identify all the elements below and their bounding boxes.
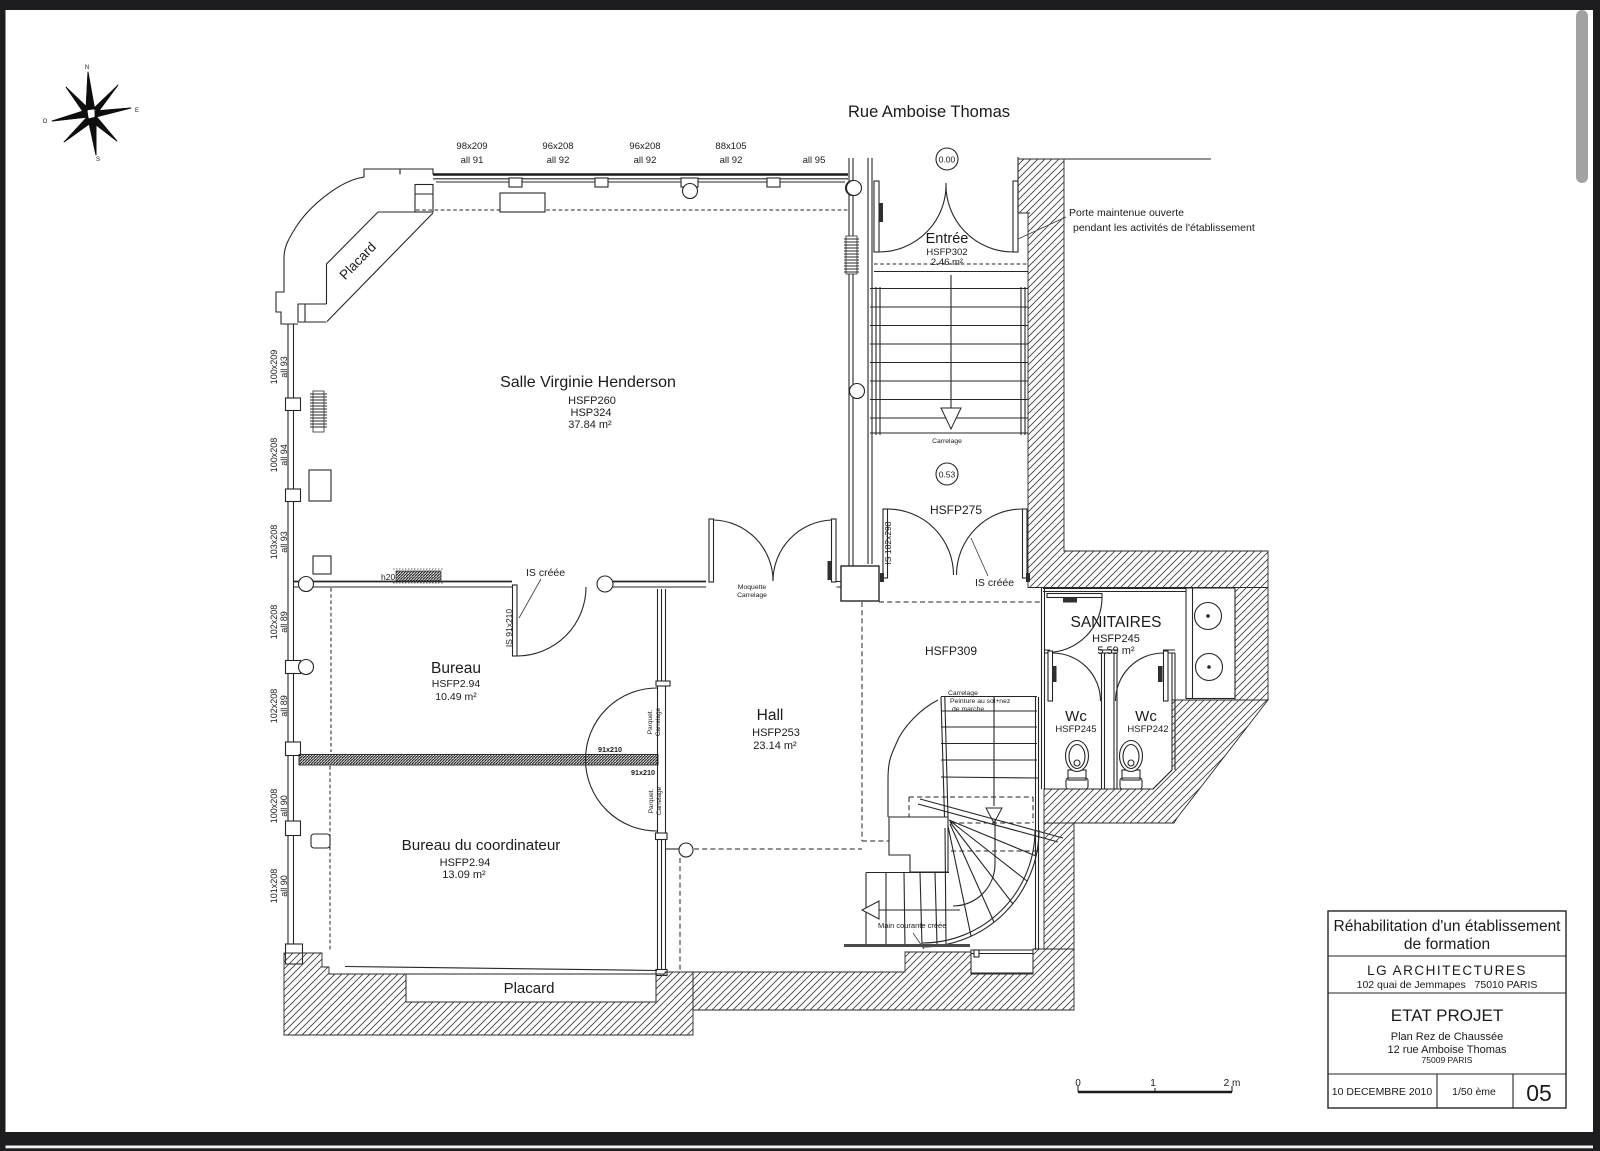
svg-text:HSFP2.94: HSFP2.94: [432, 678, 481, 690]
svg-text:2 m: 2 m: [1224, 1078, 1241, 1089]
svg-text:Main courante créée: Main courante créée: [878, 921, 946, 930]
svg-text:10.49 m²: 10.49 m²: [435, 691, 477, 703]
svg-text:101x208: 101x208: [269, 869, 279, 904]
svg-text:Wc: Wc: [1135, 708, 1157, 725]
svg-text:0: 0: [1075, 1078, 1081, 1089]
svg-text:91x210: 91x210: [598, 745, 622, 754]
svg-text:IS créée: IS créée: [526, 567, 565, 579]
svg-text:Parquet.: Parquet.: [648, 789, 655, 814]
svg-text:88x105: 88x105: [715, 141, 746, 152]
svg-text:HSFP245: HSFP245: [1092, 633, 1140, 645]
svg-text:HSFP245: HSFP245: [1055, 724, 1096, 735]
svg-text:Plan Rez de Chaussée: Plan Rez de Chaussée: [1391, 1031, 1504, 1043]
svg-text:Placard: Placard: [504, 980, 555, 997]
svg-text:O: O: [43, 119, 48, 125]
svg-text:1/50 ème: 1/50 ème: [1452, 1086, 1496, 1098]
svg-text:5.59 m²: 5.59 m²: [1097, 645, 1135, 657]
svg-text:all 93: all 93: [279, 356, 289, 378]
svg-text:N: N: [85, 65, 89, 71]
svg-text:Wc: Wc: [1065, 708, 1087, 725]
svg-text:HSFP253: HSFP253: [752, 727, 800, 739]
svg-text:HSFP309: HSFP309: [925, 644, 977, 658]
svg-text:Moquette: Moquette: [738, 584, 767, 591]
svg-text:S: S: [96, 157, 100, 163]
svg-text:98x209: 98x209: [456, 141, 487, 152]
svg-text:1: 1: [1150, 1078, 1156, 1089]
svg-text:05: 05: [1526, 1080, 1552, 1106]
svg-text:all 93: all 93: [279, 531, 289, 553]
svg-text:h20: h20: [381, 572, 395, 582]
svg-text:SANITAIRES: SANITAIRES: [1070, 614, 1161, 631]
svg-text:100x208: 100x208: [269, 789, 279, 824]
svg-text:0.00: 0.00: [939, 155, 956, 165]
svg-text:96x208: 96x208: [629, 141, 660, 152]
svg-text:Entrée: Entrée: [926, 231, 969, 247]
svg-text:Carrelage: Carrelage: [655, 707, 662, 736]
svg-text:all 92: all 92: [547, 155, 570, 166]
svg-text:HSFP275: HSFP275: [930, 503, 982, 517]
svg-text:Hall: Hall: [757, 707, 784, 724]
svg-text:102x208: 102x208: [269, 689, 279, 724]
svg-text:E: E: [135, 108, 139, 114]
svg-text:Carrelage: Carrelage: [948, 690, 978, 697]
svg-text:23.14 m²: 23.14 m²: [753, 740, 797, 752]
svg-text:103x208: 103x208: [269, 525, 279, 560]
svg-text:IS 182x298: IS 182x298: [883, 521, 893, 564]
svg-text:HSFP242: HSFP242: [1127, 724, 1168, 735]
svg-text:13.09 m²: 13.09 m²: [442, 869, 486, 881]
svg-text:de formation: de formation: [1404, 936, 1490, 953]
svg-text:pendant les activités de l'éta: pendant les activités de l'établissement: [1073, 222, 1255, 234]
svg-text:HSFP2.94: HSFP2.94: [440, 857, 491, 869]
svg-text:de marche: de marche: [952, 706, 984, 713]
svg-text:all 91: all 91: [461, 155, 484, 166]
svg-text:HSFP260: HSFP260: [568, 395, 616, 407]
svg-text:Rue Amboise Thomas: Rue Amboise Thomas: [848, 103, 1010, 121]
svg-text:Parquet.: Parquet.: [647, 710, 654, 735]
svg-text:IS 91x210: IS 91x210: [504, 609, 514, 648]
svg-text:37.84 m²: 37.84 m²: [568, 419, 612, 431]
svg-text:Porte maintenue ouverte: Porte maintenue ouverte: [1069, 207, 1184, 219]
svg-text:all 90: all 90: [279, 875, 289, 897]
svg-text:91x210: 91x210: [631, 768, 655, 777]
svg-text:2.46 m²: 2.46 m²: [931, 257, 963, 268]
svg-text:LG ARCHITECTURES: LG ARCHITECTURES: [1367, 963, 1527, 978]
svg-text:102x208: 102x208: [269, 605, 279, 640]
svg-text:Bureau du coordinateur: Bureau du coordinateur: [402, 837, 561, 854]
svg-text:Réhabilitation d'un établissem: Réhabilitation d'un établissement: [1334, 918, 1562, 935]
svg-text:96x208: 96x208: [542, 141, 573, 152]
svg-text:75009 PARIS: 75009 PARIS: [1422, 1055, 1473, 1065]
svg-text:all 92: all 92: [634, 155, 657, 166]
svg-text:IS créée: IS créée: [975, 577, 1014, 589]
svg-text:all 94: all 94: [279, 444, 289, 466]
svg-text:Salle Virginie Henderson: Salle Virginie Henderson: [500, 374, 676, 391]
svg-text:all 89: all 89: [279, 611, 289, 633]
svg-text:Carrelage: Carrelage: [932, 438, 962, 445]
svg-text:Bureau: Bureau: [431, 660, 481, 677]
svg-text:ETAT PROJET: ETAT PROJET: [1391, 1006, 1503, 1025]
svg-text:Peinture au sol+nez: Peinture au sol+nez: [950, 698, 1011, 705]
svg-text:all 89: all 89: [279, 695, 289, 717]
svg-text:100x208: 100x208: [269, 438, 279, 473]
svg-text:all 90: all 90: [279, 795, 289, 817]
svg-text:all 95: all 95: [803, 155, 826, 166]
svg-text:10 DECEMBRE 2010: 10 DECEMBRE 2010: [1332, 1086, 1433, 1098]
svg-text:100x209: 100x209: [269, 350, 279, 385]
svg-text:Carrelage: Carrelage: [737, 592, 767, 599]
svg-text:all 92: all 92: [720, 155, 743, 166]
svg-text:HSP324: HSP324: [571, 407, 612, 419]
svg-text:0.53: 0.53: [939, 470, 956, 480]
svg-text:102 quai de Jemmapes 75010 P: 102 quai de Jemmapes 75010 PARIS: [1357, 979, 1538, 991]
